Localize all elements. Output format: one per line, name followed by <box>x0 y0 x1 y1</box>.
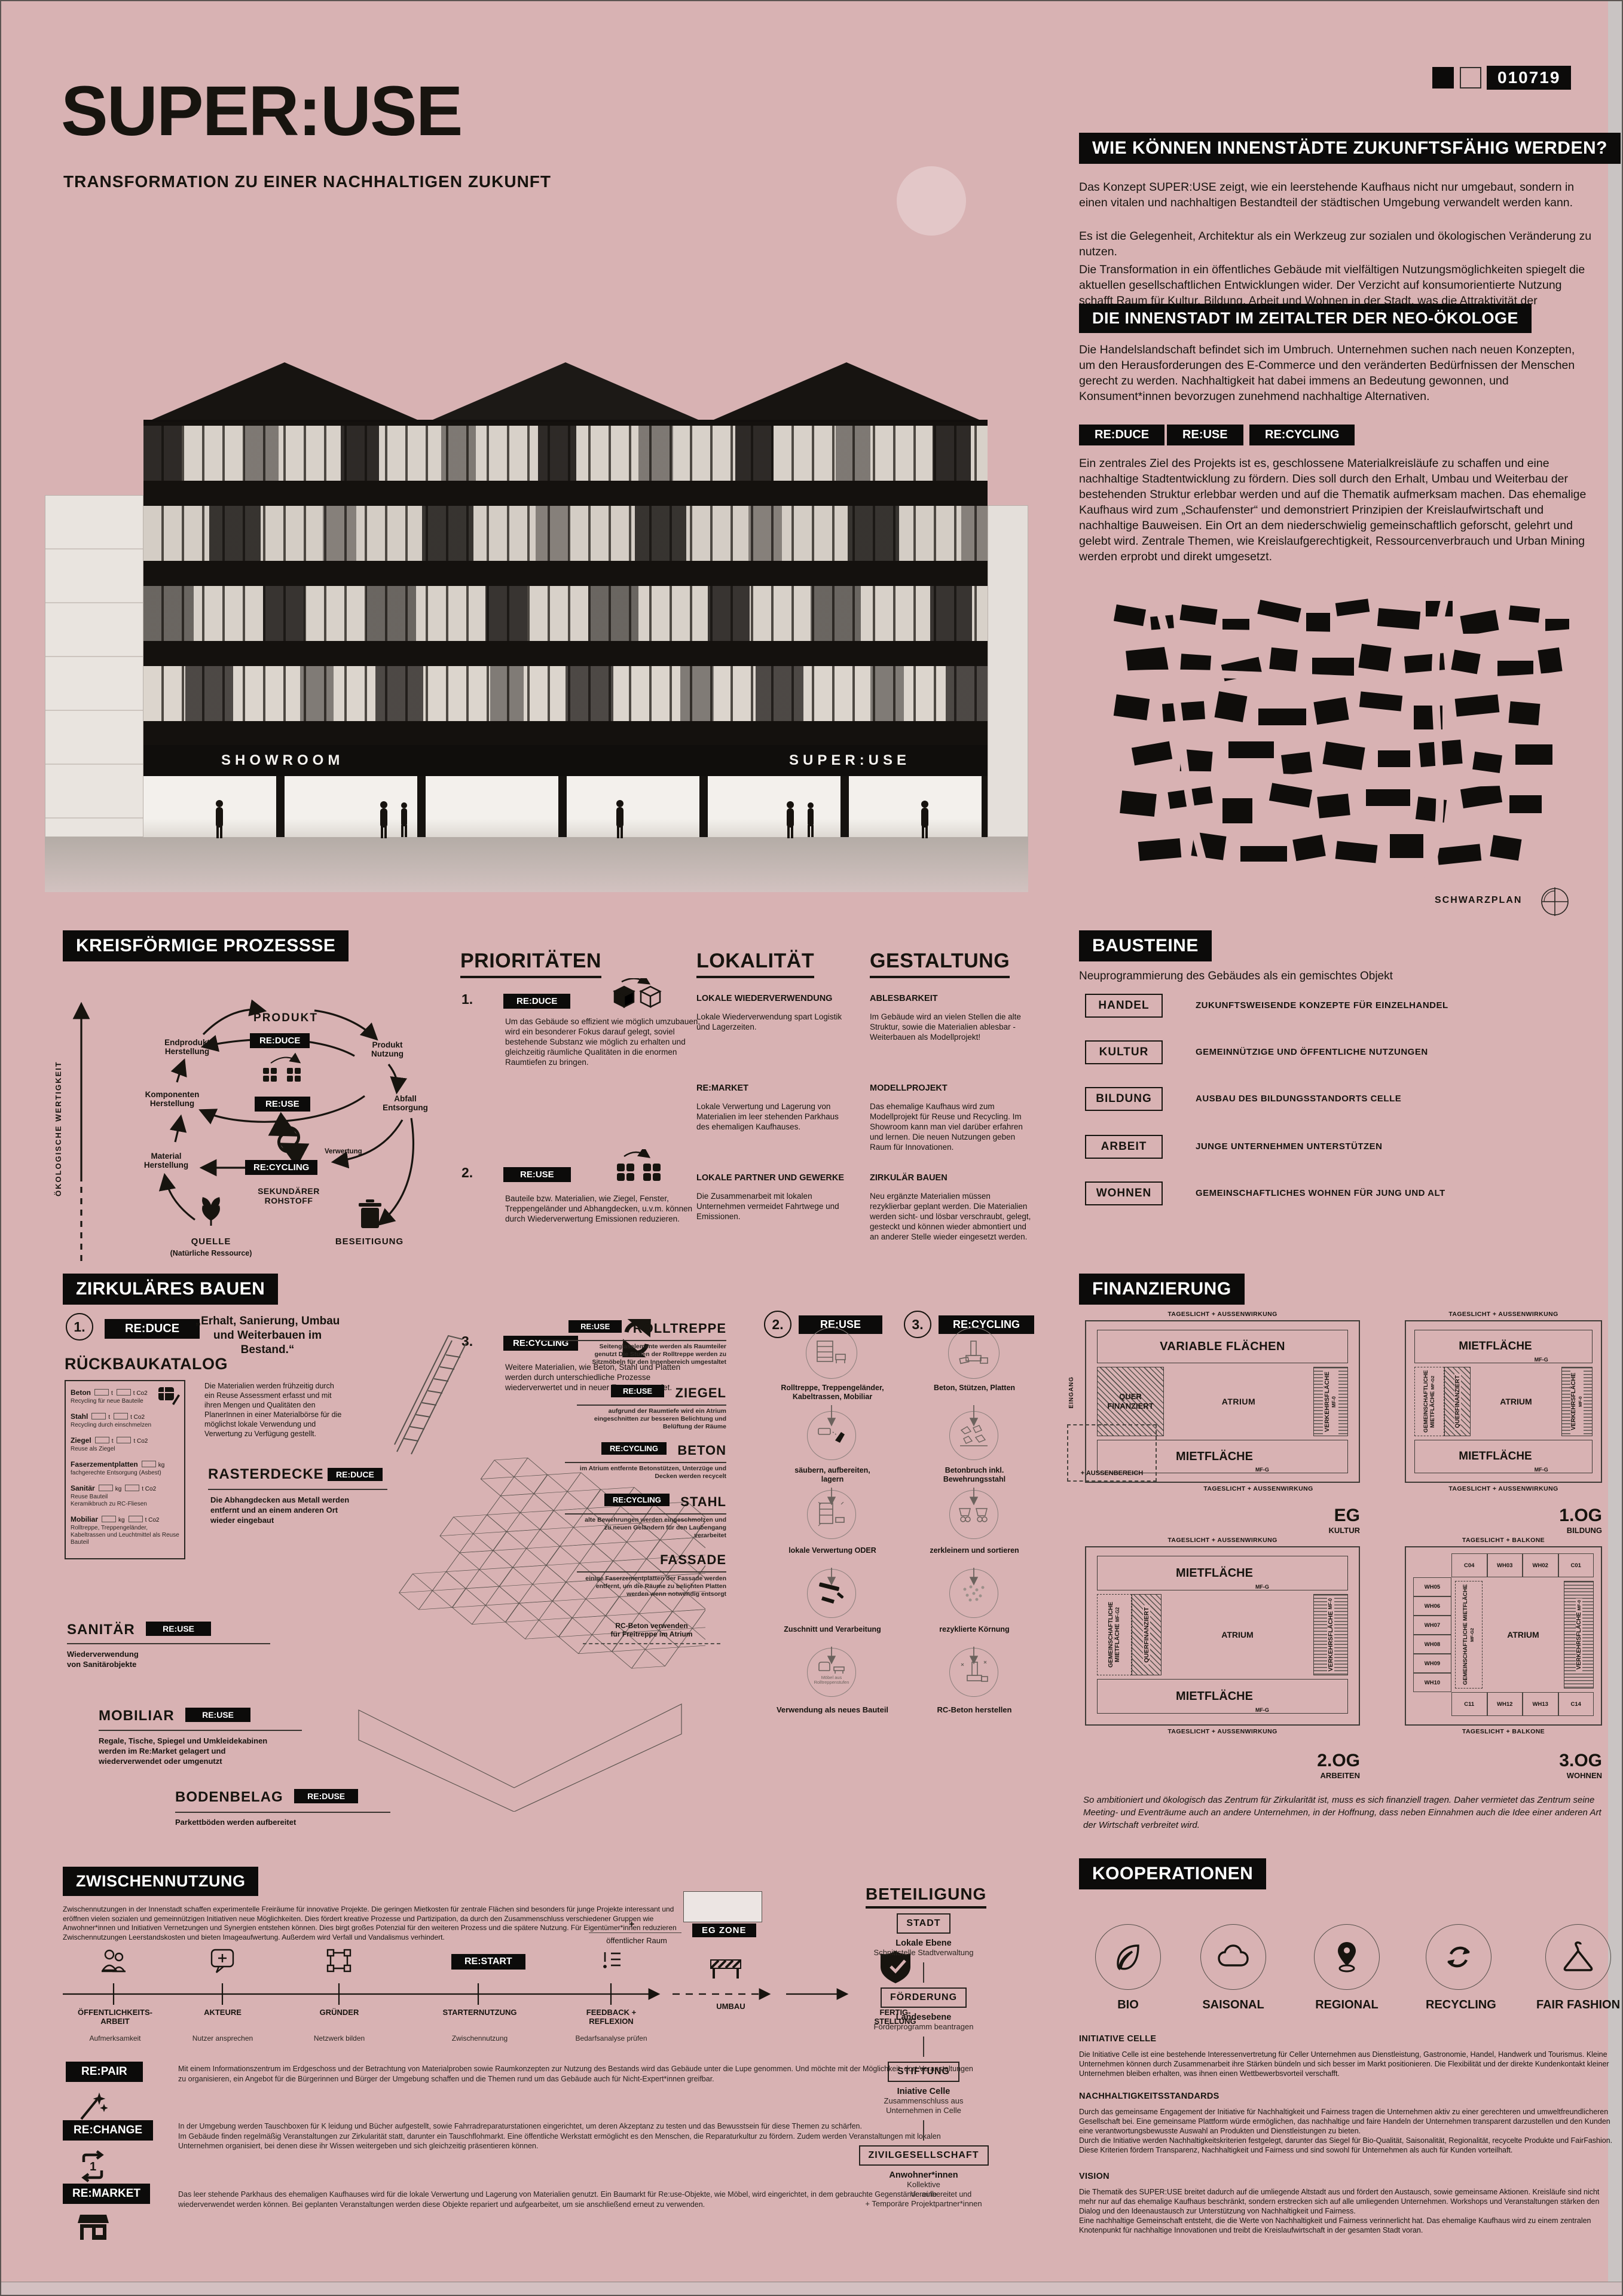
lok-3-head: LOKALE PARTNER UND GEWERKE <box>696 1173 870 1183</box>
baustein-desc-kultur: GEMEINNÜTZIGE UND ÖFFENTLICHE NUTZUNGEN <box>1196 1047 1578 1057</box>
badge-regional <box>1314 1924 1380 1990</box>
callout-mobiliar-head: MOBILIAR RE:USE <box>99 1708 250 1724</box>
timeline-sub-5: Bedarfsanalyse prüfen <box>562 2034 661 2042</box>
material-table-icon <box>158 1386 181 1406</box>
katalog-row: Sanitärkgt Co2Reuse Bauteil Keramikbruch… <box>71 1483 179 1508</box>
callout-rolltreppe-head: RE:USE ROLLTREPPE <box>541 1320 726 1341</box>
rueckbaukatalog-box: Betontt Co2Recycling für neue Bauteile S… <box>65 1380 185 1559</box>
prio-2-text: Bauteile bzw. Materialien, wie Ziegel, F… <box>505 1193 708 1224</box>
badge-recycling <box>1426 1924 1491 1990</box>
baustein-desc-wohnen: GEMEINSCHAFTLICHES WOHNEN FÜR JUNG UND A… <box>1196 1188 1578 1198</box>
plan-atrium: ATRIUM <box>1471 1367 1561 1436</box>
flow-arrows <box>825 1321 1022 1710</box>
egzone-public: öffentlicher Raum <box>589 1936 684 1945</box>
prio-1-text: Um das Gebäude so effizient wie möglich … <box>505 1016 702 1067</box>
callout-fassade-text: einige Faserzementplatten der Fassade we… <box>577 1575 726 1598</box>
value-box <box>117 1389 131 1396</box>
ges-3-head: ZIRKULÄR BAUEN <box>870 1173 1031 1183</box>
plan-atrium: ATRIUM <box>1162 1594 1313 1675</box>
value-box <box>95 1437 109 1443</box>
plan-atrium: ATRIUM <box>1483 1577 1564 1692</box>
lok-1-head: LOKALE WIEDERVERWENDUNG <box>696 994 858 1003</box>
callout-beton-head: RE:CYCLING BETON <box>565 1442 726 1463</box>
callout-beton-tag: RE:CYCLING <box>601 1442 667 1455</box>
restart-tag: RE:START <box>451 1954 525 1970</box>
baustein-box-arbeit: ARBEIT <box>1085 1135 1163 1159</box>
prio-2-num: 2. <box>461 1165 473 1181</box>
process-tag-recycling: RE:CYCLING <box>245 1160 317 1175</box>
baustein-box-kultur: KULTUR <box>1085 1040 1163 1064</box>
ges-3-text: Neu ergänzte Materialien müssen rezyklie… <box>870 1191 1032 1242</box>
recycle-icon <box>279 1128 298 1152</box>
node-sekundaer: SEKUNDÄRER ROHSTOFF <box>250 1186 328 1205</box>
trash-icon <box>359 1199 381 1228</box>
value-box <box>91 1413 106 1419</box>
timeline-sub-1: Aufmerksamkeit <box>66 2034 164 2042</box>
hanger-icon <box>1561 1941 1595 1973</box>
badge-label-recycling: RECYCLING <box>1426 1998 1491 2012</box>
floor-label-1og: 1.OG BILDUNG <box>1491 1506 1602 1535</box>
baustein-desc-bildung: AUSBAU DES BILDUNGSSTANDORTS CELLE <box>1196 1094 1578 1104</box>
badge-bio <box>1095 1924 1161 1990</box>
plan-gemeinschaftliche: GEMEINSCHAFTLICHE MIETFLÄCHE MF-G2 <box>1097 1594 1132 1675</box>
floor-plan-eg: TAGESLICHT + AUSSENWIRKUNG VARIABLE FLÄC… <box>1085 1311 1360 1492</box>
mobiliar-line <box>99 1730 302 1731</box>
plan-middle: WH05 WH06 WH07 WH08 WH09 WH10 GEMEINSCHA… <box>1413 1577 1594 1692</box>
baustein-box-handel: HANDEL <box>1085 994 1163 1018</box>
floor-plan-3og: TAGESLICHT + BALKONE C04 WH03 WH02 C01 W… <box>1405 1537 1602 1735</box>
value-box <box>102 1516 116 1522</box>
egzone-diagram <box>683 1891 762 1922</box>
section-title-beteiligung: BETEILIGUNG <box>866 1885 986 1909</box>
value-box <box>125 1485 139 1491</box>
callout-boden-head: BODENBELAG RE:DUSE <box>175 1789 358 1806</box>
callout-rolltreppe-text: Seitenglaselemente werden als Raumteiler… <box>577 1343 726 1366</box>
callout-boden-text: Parkettböden werden aufbereitet <box>175 1818 366 1827</box>
neighbor-building-left <box>45 495 143 837</box>
tag-reuse: RE:USE <box>1167 425 1243 445</box>
connector <box>923 1962 924 1983</box>
section-title-zirkulaer: ZIRKULÄRES BAUEN <box>63 1274 278 1305</box>
building-facade <box>143 422 988 745</box>
map-label: SCHWARZPLAN <box>1435 895 1522 906</box>
legend-square-outline <box>1460 67 1481 88</box>
section-title-question: WIE KÖNNEN INNENSTÄDTE ZUKUNFTSFÄHIG WER… <box>1079 133 1621 164</box>
neighbor-building-right <box>988 505 1028 837</box>
plan-mietflaeche-bottom: MIETFLÄCHEMF-G <box>1414 1440 1593 1473</box>
exchange-icon: 1 <box>77 2150 109 2182</box>
intro-paragraph-1: Das Konzept SUPER:USE zeigt, wie ein lee… <box>1079 179 1592 210</box>
process-tag-reuse: RE:USE <box>255 1097 310 1112</box>
node-quelle: QUELLE <box>175 1236 247 1247</box>
timeline-label-5: FEEDBACK + REFLEXION <box>562 2008 661 2026</box>
people-icon <box>102 1950 126 1971</box>
koop-text-vision: Die Thematik des SUPER:USE breitet dadur… <box>1079 2187 1617 2235</box>
window-row <box>143 506 988 561</box>
badge-label-saisonal: SAISONAL <box>1200 1998 1266 2012</box>
section-title-bausteine: BAUSTEINE <box>1079 930 1212 961</box>
compass-icon <box>1539 886 1570 917</box>
katalog-row: Faserzementplattenkgfachgerechte Entsorg… <box>71 1459 179 1477</box>
connector <box>923 2037 924 2057</box>
window-row <box>143 586 988 641</box>
assessment-text: Die Materialien werden frühzeitig durch … <box>204 1381 343 1439</box>
plan-units-bottom: C11 WH12 WH13 C14 <box>1413 1692 1594 1716</box>
koop-text-initiative: Die Initiative Celle ist eine bestehende… <box>1079 2050 1617 2078</box>
baustein-desc-handel: ZUKUNFTSWEISENDE KONZEPTE FÜR EINZELHAND… <box>1196 1000 1578 1010</box>
connector <box>923 2120 924 2141</box>
page-subtitle: TRANSFORMATION ZU EINER NACHHALTIGEN ZUK… <box>63 172 551 191</box>
plan-verkehrsflaeche: VERKEHRSFLÄCHE MF-0 <box>1313 1594 1348 1675</box>
map-pin-icon <box>1334 1941 1360 1973</box>
floor-label-3og: 3.OG WOHNEN <box>1491 1751 1602 1780</box>
plan-gemeinschaftliche: GEMEINSCHAFTLICHE MIETFLÄCHE MF-G2 <box>1455 1581 1483 1689</box>
column-title-prioritaeten: PRIORITÄTEN <box>460 949 601 978</box>
timeline-sub-3: Netzwerk bilden <box>290 2034 389 2042</box>
timeline-label-2: AKTEURE <box>173 2008 272 2017</box>
prio-2-tag: RE:USE <box>503 1167 571 1182</box>
lok-2-text: Lokale Verwertung und Lagerung von Mater… <box>696 1101 849 1132</box>
node-material: Material Herstellung <box>130 1152 202 1170</box>
node-produkt: PRODUKT <box>250 1012 322 1025</box>
remarket-tag: RE:MARKET <box>63 2184 150 2204</box>
prio-1-num: 1. <box>461 991 473 1007</box>
badge-label-bio: BIO <box>1095 1998 1161 2012</box>
cloud-icon <box>1217 1944 1250 1970</box>
step-1-number: 1. <box>66 1313 93 1341</box>
node-komponenten: Komponenten Herstellung <box>136 1090 208 1108</box>
koop-head-standards: NACHHALTIGKEITSSTANDARDS <box>1079 2092 1219 2101</box>
timeline-label-3: GRÜNDER <box>290 2008 389 2017</box>
sun-circle <box>897 166 966 236</box>
finanzierung-caption: So ambitioniert und ökologisch das Zentr… <box>1083 1794 1609 1831</box>
boden-line <box>175 1812 390 1813</box>
neo-paragraph: Die Handelslandschaft befindet sich im U… <box>1079 342 1592 404</box>
checklist-icon <box>604 1952 621 1968</box>
building-fascia: SHOWROOM SUPER:USE <box>143 745 988 776</box>
tags-paragraph: Ein zentrales Ziel des Projekts ist es, … <box>1079 456 1592 564</box>
floor-label-eg: EG KULTUR <box>1249 1506 1360 1535</box>
legend-square-filled <box>1432 67 1454 88</box>
tag-recycling: RE:CYCLING <box>1249 425 1355 445</box>
value-box <box>129 1516 143 1522</box>
callout-ziegel-tag: RE:USE <box>611 1385 664 1397</box>
plant-icon <box>203 1198 219 1226</box>
beteiligung-stadt: STADT <box>897 1913 950 1934</box>
callout-stahl-text: alte Bewehrungen werden eingeschmolzen u… <box>577 1516 726 1540</box>
plan-verkehrsflaeche: VERKEHRSFLÄCHE MF-0 <box>1564 1581 1594 1689</box>
koop-text-standards: Durch das gemeinsame Engagement der Init… <box>1079 2107 1617 2155</box>
street-ground <box>45 837 1028 892</box>
column-title-gestaltung: GESTALTUNG <box>870 949 1010 978</box>
timeline-sub-2: Nutzer ansprechen <box>173 2034 272 2042</box>
badge-saisonal <box>1200 1924 1266 1990</box>
circular-process-diagram: ÖKOLOGISCHE WERTIGKEIT PRODUKT Produkt N… <box>53 985 477 1272</box>
leaf-icon <box>1112 1941 1144 1973</box>
window-row <box>143 426 988 481</box>
column-title-lokalitaet: LOKALITÄT <box>696 949 814 978</box>
barrier-icon <box>710 1959 741 1979</box>
badge-fair-fashion <box>1545 1924 1611 1990</box>
lok-1-text: Lokale Wiederverwendung spart Logistik u… <box>696 1012 846 1032</box>
beteiligung-stiftung: STIFTUNG <box>888 2062 959 2082</box>
callout-boden-tag: RE:DUSE <box>294 1789 358 1803</box>
callout-stahl-head: RE:CYCLING STAHL <box>565 1494 726 1515</box>
step-2-number: 2. <box>764 1311 791 1338</box>
section-title-finanzierung: FINANZIERUNG <box>1079 1274 1245 1305</box>
plan-verkehrsflaeche: VERKEHRSFLÄCHE MF-0 <box>1313 1367 1348 1436</box>
plan-variable-flaechen: VARIABLE FLÄCHEN <box>1097 1330 1348 1363</box>
plan-querfinanziert: QUERFINANZIERT <box>1444 1367 1471 1436</box>
callout-sanitaer-tag: RE:USE <box>146 1622 211 1636</box>
intro-paragraph-2: Es ist die Gelegenheit, Architektur als … <box>1079 228 1592 259</box>
floor-plan-1og: TAGESLICHT + AUSSENWIRKUNG MIETFLÄCHEMF-… <box>1405 1311 1602 1492</box>
katalog-row: Ziegeltt Co2Reuse als Ziegel <box>71 1435 179 1453</box>
step-1-tag: RE:DUCE <box>105 1319 200 1339</box>
project-code-badge: 010719 <box>1487 66 1571 90</box>
koop-head-initiative: INITIATIVE CELLE <box>1079 2034 1156 2044</box>
callout-fassade-head: FASSADE <box>577 1552 726 1573</box>
plan-atrium: ATRIUM <box>1164 1367 1313 1436</box>
cube-reuse-icon <box>604 978 670 1012</box>
baustein-box-bildung: BILDUNG <box>1085 1087 1163 1111</box>
egzone-plus: + <box>629 1919 634 1930</box>
plan-mietflaeche-top: MIETFLÄCHEMF-G <box>1097 1556 1348 1590</box>
beteiligung-foerderung: FÖRDERUNG <box>881 1987 967 2008</box>
ges-1-text: Im Gebäude wird an vielen Stellen die al… <box>870 1012 1028 1042</box>
node-quelle-sub: (Natürliche Ressource) <box>157 1249 265 1257</box>
plan-units-top: C04 WH03 WH02 C01 <box>1413 1553 1594 1577</box>
svg-text:1: 1 <box>90 2160 96 2173</box>
node-endprodukt: Endprodukt Herstellung <box>151 1038 223 1056</box>
ges-2-head: MODELLPROJEKT <box>870 1083 1031 1093</box>
plan-gemeinschaftliche: GEMEINSCHAFTLICHE MIETFLÄCHE MF-G2 <box>1414 1367 1444 1436</box>
badge-label-regional: REGIONAL <box>1314 1998 1380 2012</box>
egzone-line <box>589 1932 681 1933</box>
tag-reduce: RE:DUCE <box>1079 425 1164 445</box>
katalog-row: Mobiliarkgt Co2Rolltreppe, Treppengeländ… <box>71 1514 179 1546</box>
building-roof <box>143 358 988 423</box>
schwarzplan-map <box>1079 583 1592 885</box>
plan-mietflaeche-bottom: MIETFLÄCHEMF-G <box>1097 1679 1348 1714</box>
timeline-label-4: STARTERNUTZUNG <box>427 2008 532 2017</box>
plan-eingang-label: EINGANG <box>1068 1376 1075 1409</box>
callout-ziegel-text: aufgrund der Raumtiefe wird ein Atrium e… <box>577 1407 726 1431</box>
badge-label-fairfashion: FAIR FASHION <box>1536 1998 1620 2012</box>
magic-wand-icon <box>77 2092 108 2123</box>
dice-reuse-icon <box>604 1149 670 1185</box>
node-beseitigung: BESEITIGUNG <box>328 1236 411 1247</box>
dice-icon <box>263 1068 301 1082</box>
node-abfall: Abfall Entsorgung <box>369 1094 441 1112</box>
callout-mobiliar-tag: RE:USE <box>185 1708 250 1722</box>
label-verwertung: Verwertung <box>325 1148 362 1155</box>
floor-label-2og: 2.OG ARBEITEN <box>1249 1751 1360 1780</box>
escalator-sketch <box>389 1315 472 1456</box>
node-nutzung: Produkt Nutzung <box>354 1040 420 1058</box>
rasterdecke-title: RASTERDECKE <box>208 1466 324 1483</box>
koop-head-vision: VISION <box>1079 2172 1109 2181</box>
callout-sanitaer-text: Wiederverwendung von Sanitärobjekte <box>67 1649 222 1669</box>
section-title-neo: DIE INNENSTADT IM ZEITALTER DER NEO-ÖKOL… <box>1079 304 1532 333</box>
process-arrows <box>53 985 477 1272</box>
timeline-label-umbau: UMBAU <box>690 2002 771 2011</box>
process-tag-reduce: RE:DUCE <box>250 1033 310 1048</box>
value-box <box>99 1485 113 1491</box>
store-icon <box>78 2212 109 2242</box>
plan-querfinanziert: QUERFINANZIERT <box>1132 1594 1162 1675</box>
building-sign-superuse: SUPER:USE <box>789 752 910 769</box>
baustein-desc-arbeit: JUNGE UNTERNEHMEN UNTERSTÜTZEN <box>1196 1141 1578 1152</box>
plan-aussenbereich: + AUSSENBEREICH <box>1067 1424 1157 1482</box>
bausteine-subtitle: Neuprogrammierung des Gebäudes als ein g… <box>1079 970 1393 983</box>
egzone-label: EG ZONE <box>692 1923 756 1937</box>
rueckbaukatalog-title: RÜCKBAUKATALOG <box>65 1355 228 1373</box>
beteiligung-zivilgesellschaft: ZIVILGESELLSCHAFT <box>859 2145 989 2166</box>
value-box <box>117 1437 131 1443</box>
rechange-tag: RE:CHANGE <box>63 2120 153 2141</box>
page-title: SUPER:USE <box>61 71 461 152</box>
katalog-row: Stahltt Co2Recycling durch einschmelzen <box>71 1411 179 1429</box>
plan-verkehrsflaeche: VERKEHRSFLÄCHE MF-0 <box>1561 1367 1593 1436</box>
value-box <box>142 1461 156 1467</box>
step-1-quote: „Erhalt, Sanierung, Umbau und Weiterbaue… <box>188 1314 347 1357</box>
plan-mietflaeche-top: MIETFLÄCHEMF-G <box>1414 1330 1593 1363</box>
repair-tag: RE:PAIR <box>66 2062 143 2082</box>
speech-plus-icon <box>212 1950 233 1973</box>
ges-1-head: ABLESBARKEIT <box>870 994 1031 1003</box>
network-icon <box>328 1950 350 1971</box>
timeline-sub-4: Zwischennutzung <box>427 2034 532 2042</box>
callout-ziegel-head: RE:USE ZIEGEL <box>577 1385 726 1406</box>
section-title-kooperationen: KOOPERATIONEN <box>1079 1858 1266 1889</box>
callout-rolltreppe-tag: RE:USE <box>568 1320 622 1333</box>
section-title-processes: KREISFÖRMIGE PROZESSSE <box>63 930 349 961</box>
value-box <box>94 1389 109 1396</box>
ges-2-text: Das ehemalige Kaufhaus wird zum Modellpr… <box>870 1101 1031 1152</box>
value-box <box>114 1413 128 1419</box>
baustein-box-wohnen: WOHNEN <box>1085 1181 1163 1205</box>
section-title-zwischennutzung: ZWISCHENNUTZUNG <box>63 1867 258 1896</box>
plan-units-left: WH05 WH06 WH07 WH08 WH09 WH10 <box>1413 1577 1451 1692</box>
lok-3-text: Die Zusammenarbeit mit lokalen Unternehm… <box>696 1191 846 1222</box>
building-sign-showroom: SHOWROOM <box>221 752 344 769</box>
callout-mobiliar-text: Regale, Tische, Spiegel und Umkleidekabi… <box>99 1736 281 1766</box>
window-row <box>143 666 988 721</box>
floor-plan-2og: TAGESLICHT + AUSSENWIRKUNG MIETFLÄCHEMF-… <box>1085 1537 1360 1735</box>
sanitaer-line <box>67 1643 270 1644</box>
prio-1-tag: RE:DUCE <box>503 994 570 1009</box>
callout-beton-text: im Atrium entfernte Betonstützen, Unterz… <box>577 1465 726 1480</box>
axis-label: ÖKOLOGISCHE WERTIGKEIT <box>54 1051 63 1207</box>
people-silhouettes <box>143 795 988 838</box>
recycle-icon <box>1442 1941 1475 1973</box>
callout-stahl-tag: RE:CYCLING <box>604 1494 670 1506</box>
callout-sanitaer-head: SANITÄR RE:USE <box>67 1622 211 1638</box>
rc-beton-note: RC-Beton verwenden für Freitreppe im Atr… <box>583 1622 720 1644</box>
beteiligung-flow: STADT Lokale Ebene Schnittstelle Stadtve… <box>837 1913 1010 2209</box>
lok-2-head: RE:MARKET <box>696 1083 858 1093</box>
timeline-label-1: ÖFFENTLICHKEITS- ARBEIT <box>66 2008 164 2026</box>
bottom-edge-strip <box>0 2282 1623 2296</box>
